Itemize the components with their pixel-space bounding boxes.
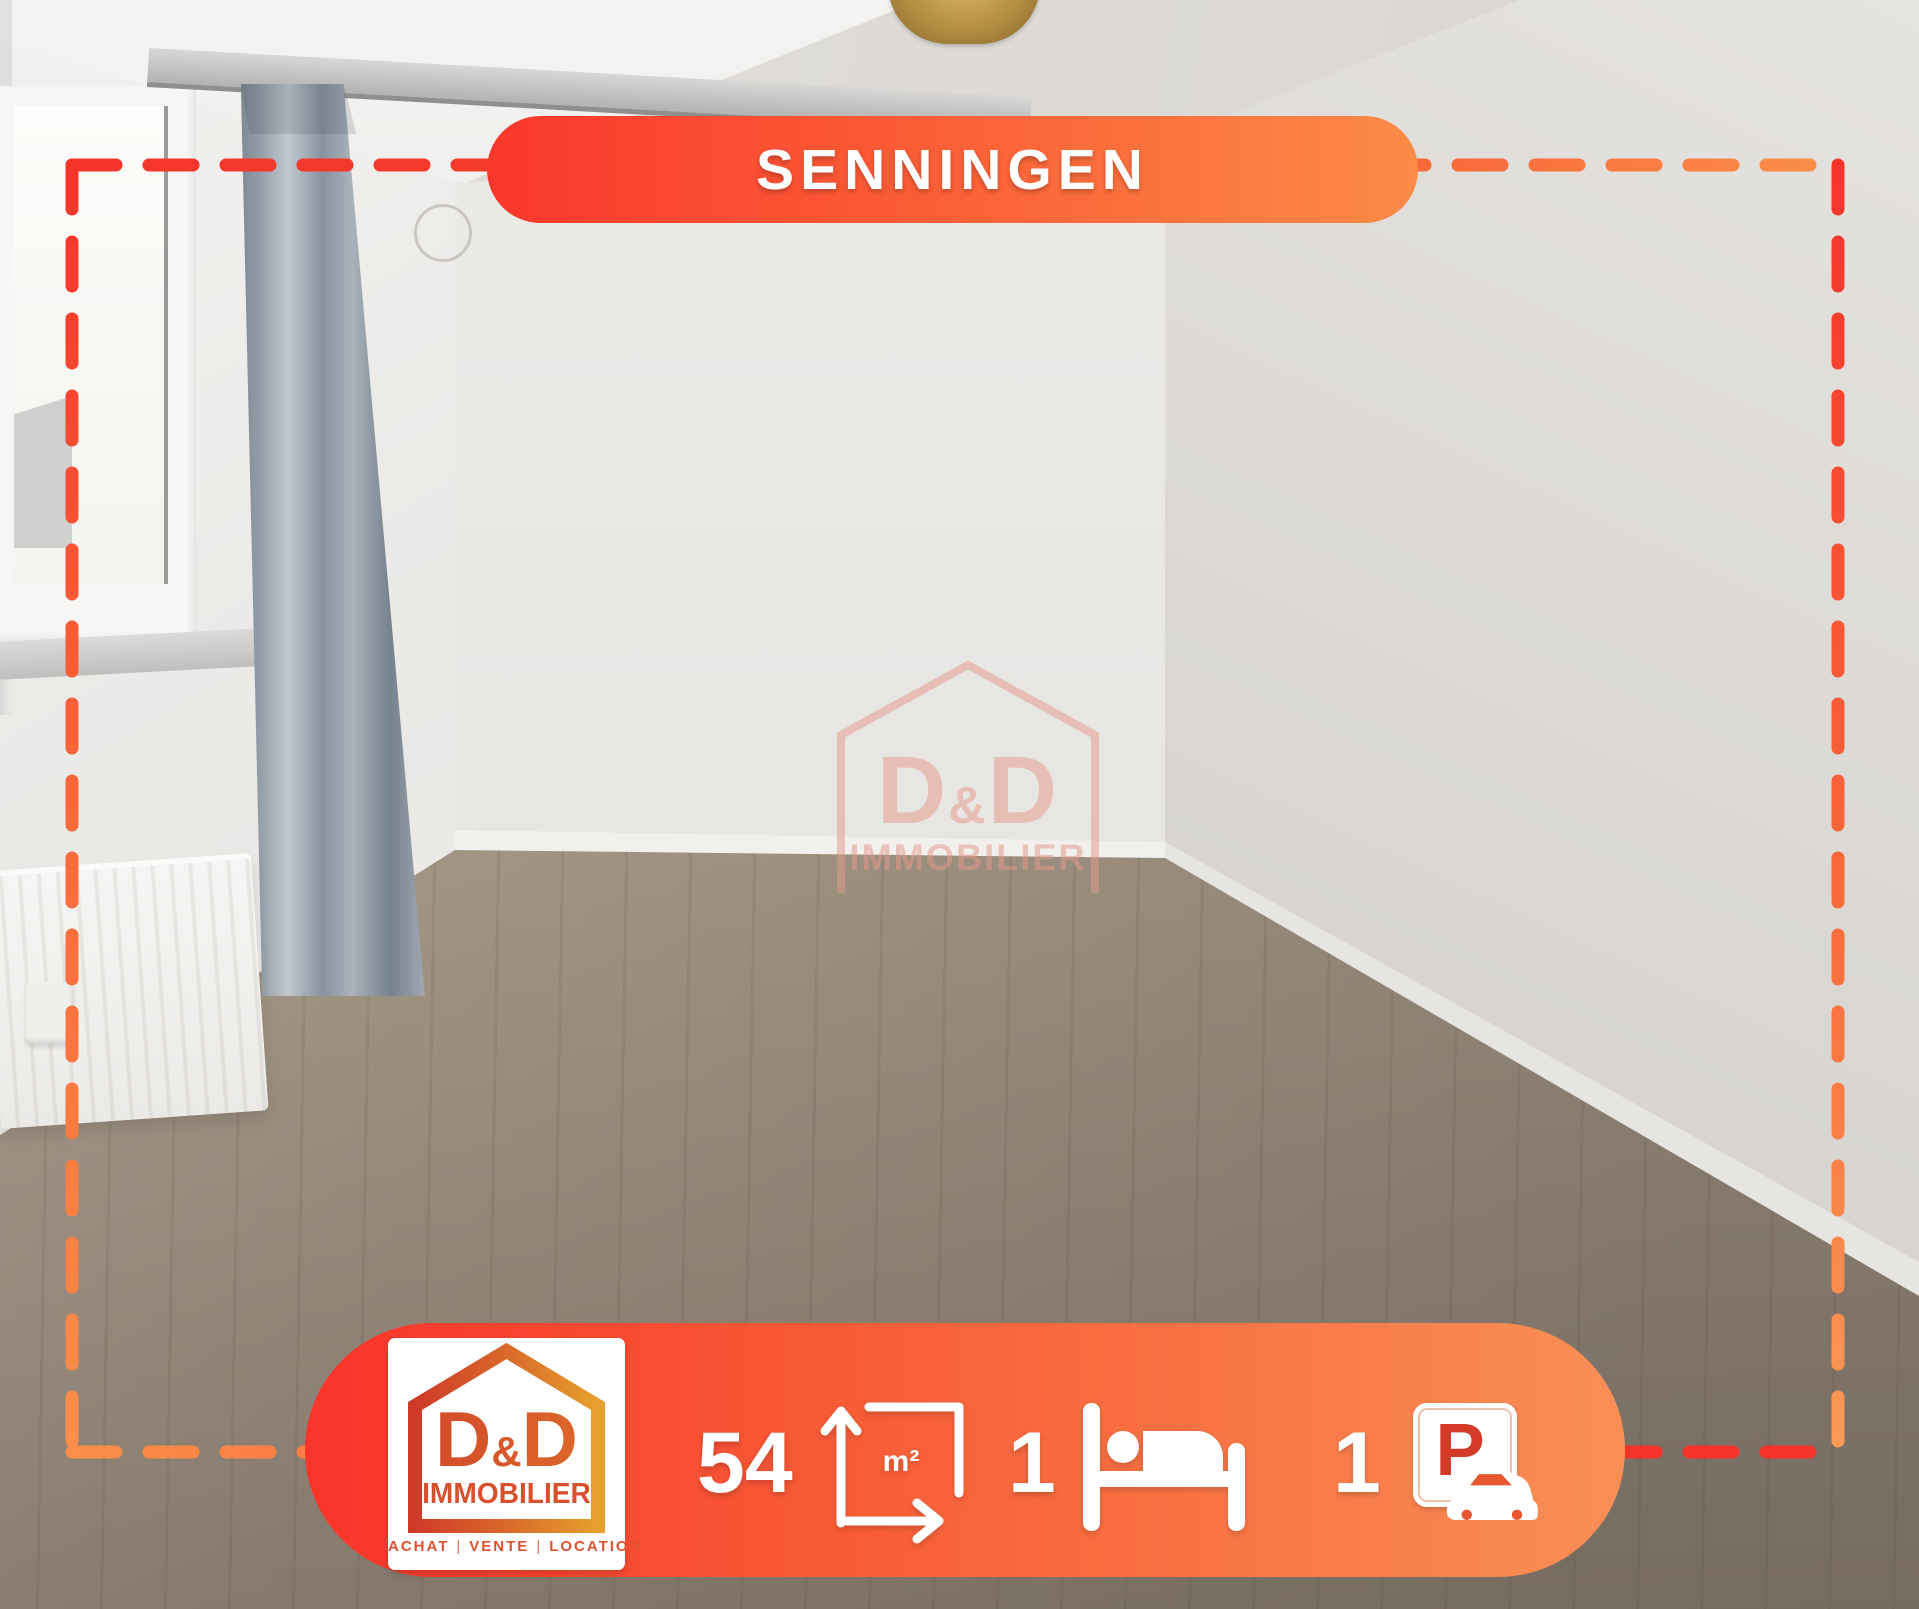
tagline-location: LOCATION	[549, 1538, 642, 1555]
location-banner: SENNINGEN	[487, 116, 1418, 223]
tagline-separator: |	[449, 1538, 469, 1555]
logo-d-right: D	[522, 1395, 578, 1483]
car-icon	[1439, 1463, 1543, 1525]
tagline-achat: ACHAT	[388, 1538, 449, 1555]
parking-icon: P	[1413, 1403, 1517, 1507]
logo-ampersand: &	[491, 1428, 521, 1475]
tagline-vente: VENTE	[469, 1538, 529, 1555]
logo-subtitle: IMMOBILIER	[392, 1478, 622, 1511]
logo-tagline: ACHAT|VENTE|LOCATION	[388, 1538, 625, 1555]
parking-value: 1	[1333, 1420, 1381, 1506]
location-name: SENNINGEN	[756, 137, 1149, 203]
m2-unit-label: m²	[863, 1445, 939, 1479]
area-m2-icon: m²	[817, 1397, 985, 1550]
agency-logo: D&D IMMOBILIER ACHAT|VENTE|LOCATION	[388, 1338, 625, 1570]
tagline-separator: |	[529, 1538, 549, 1555]
bedrooms-value: 1	[1008, 1420, 1056, 1506]
info-banner: D&D IMMOBILIER ACHAT|VENTE|LOCATION 54 m…	[305, 1323, 1625, 1577]
area-value: 54	[697, 1420, 793, 1506]
bed-icon	[1083, 1403, 1245, 1536]
logo-d-left: D	[435, 1395, 491, 1483]
logo-brand-name: D&D	[388, 1400, 625, 1478]
listing-photo-card: D&D IMMOBILIER	[0, 0, 1919, 1609]
